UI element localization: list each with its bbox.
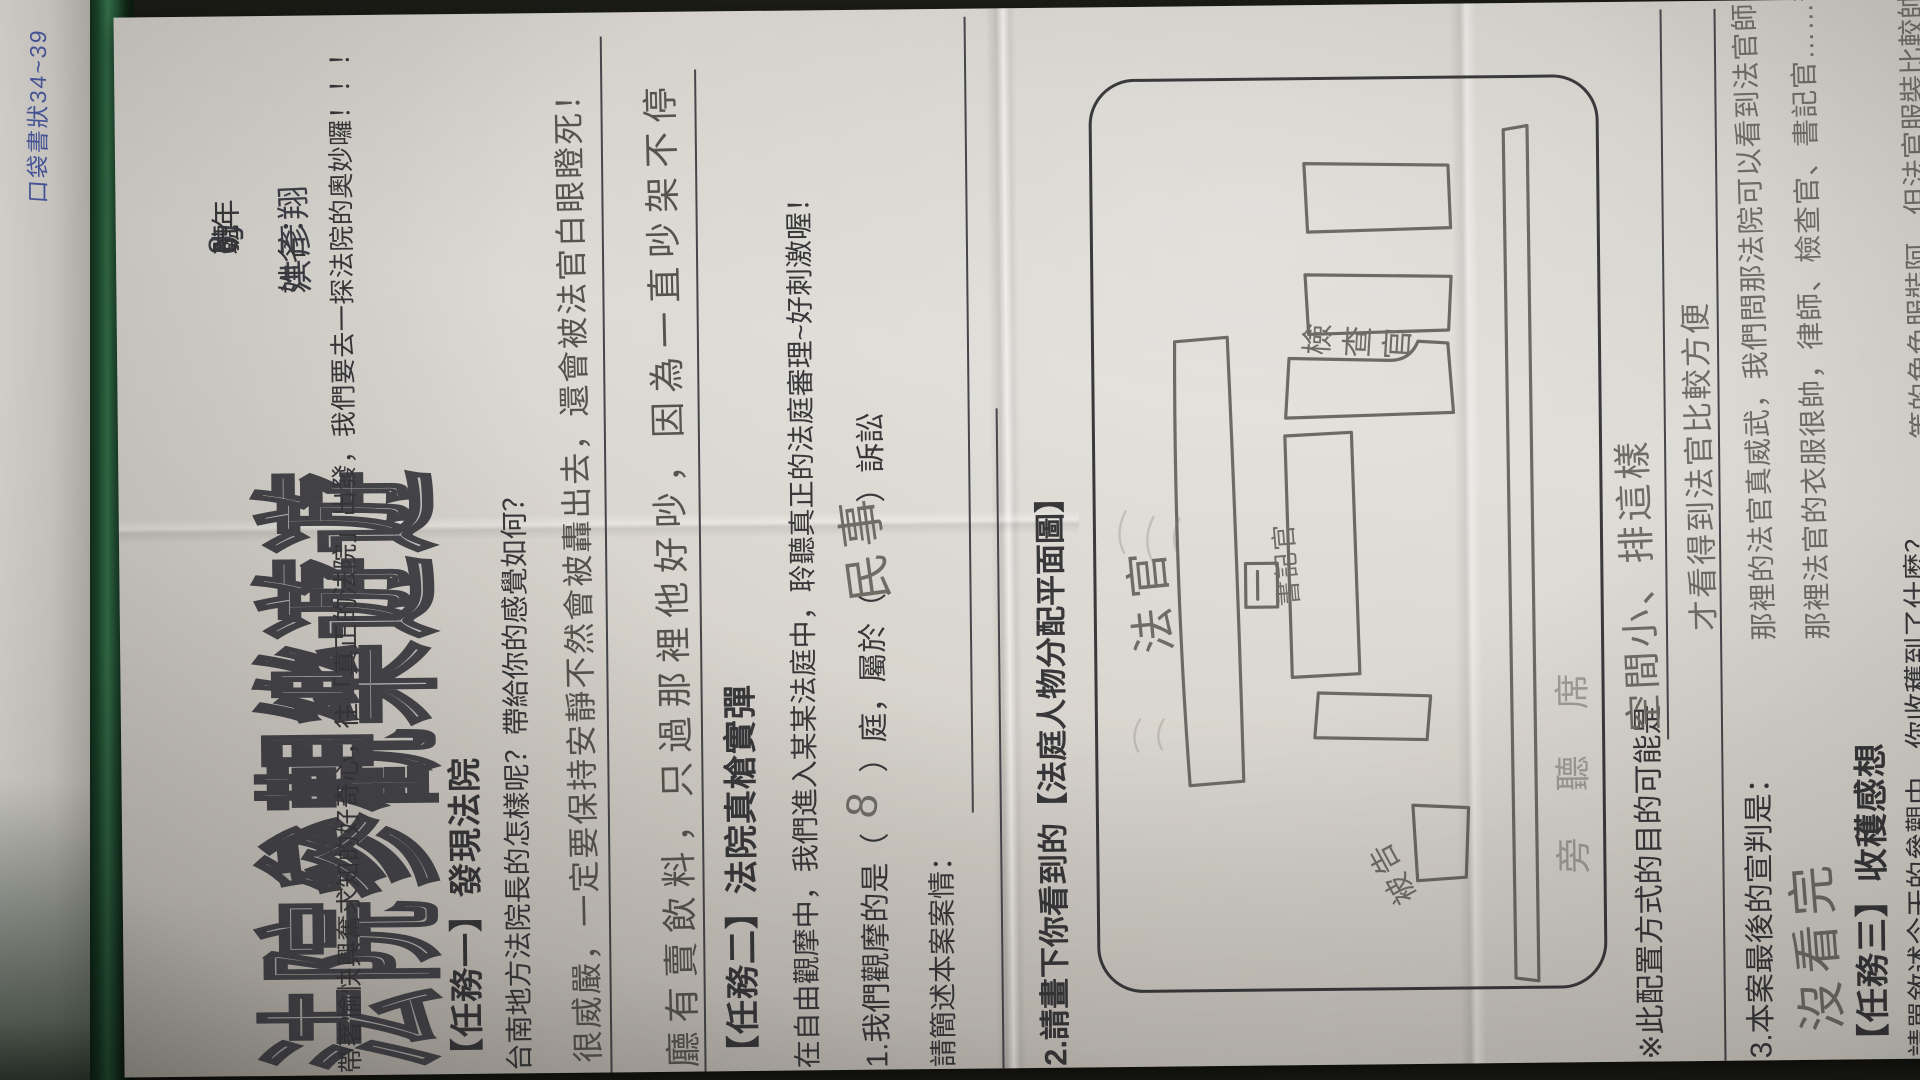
layout-purpose-printed: ※此配置方式的目的可能是	[1623, 704, 1671, 1060]
verdict-printed: 3.本案最後的宣判是：	[1733, 763, 1780, 1058]
label-clerk: 書記官	[1263, 521, 1307, 608]
photo-stage: 口袋書狀34~39 法院參觀樂遊遊 6 年 ㄅ 班 8 號 姓名： 洪彥翔 帶著…	[0, 0, 1920, 1080]
blue-note-wrap: 口袋書狀34~39	[16, 16, 56, 216]
layout-purpose-handwritten: 空間小、排這樣	[1601, 437, 1669, 733]
witness-stand-sketch	[1314, 692, 1431, 741]
verdict-answer-handwritten: 沒看完	[1770, 855, 1856, 1034]
courtroom-floorplan: 法官 書記官 檢查官 被告 旁聽席	[1088, 74, 1608, 993]
task2-description: 在自由觀摩中，我們進入某某法庭中，聆聽真正的法庭審理~好刺激喔！	[777, 184, 826, 1069]
task3-question: 請單敘述今天的參觀中，你收穫到了什麼？	[1895, 525, 1920, 1057]
underlying-sheet-edge: 口袋書狀34~39	[0, 0, 96, 1080]
label-audience: 旁聽席	[1543, 627, 1598, 874]
judge-bench-sketch	[1174, 337, 1244, 786]
student-name-handwritten: 洪彥翔	[265, 182, 319, 295]
seat-label: 號	[202, 224, 246, 254]
essay-line1: 那裡的法官真威武，我們問那法院可以看到法官師	[1723, 2, 1783, 641]
label-prosecutor: 檢查官	[1297, 314, 1419, 361]
task1-heading: 【任務一】發現法院	[437, 757, 489, 1072]
essay-line2: 那裡法官的衣服很帥，律師、檢查官、書記官……等	[1780, 0, 1836, 640]
task1-answer-line1: 很威嚴，一定要保持安靜不然會被轟出去，還會被法官白眼瞪死！	[543, 76, 610, 1063]
layout-purpose-handwritten-line2: 才看得到法官比較方便	[1670, 300, 1724, 631]
label-judge: 法官	[1109, 539, 1186, 657]
task3-heading: 【任務三】收穫感想	[1843, 742, 1895, 1057]
defendant-desk-sketch	[1413, 805, 1469, 881]
floorplan-sketch-lines	[1091, 77, 1604, 990]
essay-line3: 等的角色服裝阿，但法官服裝比較帥	[1889, 0, 1920, 439]
paper-crease	[985, 8, 1026, 1068]
audience-bench-sketch	[1503, 125, 1539, 981]
right-desk-sketch	[1304, 162, 1451, 232]
ruled-line	[964, 17, 974, 813]
case-type-handwritten: 民事	[818, 490, 902, 606]
court-number-handwritten: 8	[836, 790, 889, 821]
task2-heading: 【任務二】法院真槍實彈	[713, 684, 766, 1069]
blue-margin-note: 口袋書狀34~39	[19, 28, 53, 205]
task1-question: 台南地方法院長的怎樣呢？帶給你的感覺如何？	[492, 483, 538, 1071]
worksheet-paper: 法院參觀樂遊遊 6 年 ㄅ 班 8 號 姓名： 洪彥翔 帶著愉快興奮求知的好奇心…	[114, 0, 1920, 1078]
task2-q2-heading: 2.請畫下你看到的【法庭人物分配平面圖】	[1024, 482, 1075, 1066]
erased-scribble	[1134, 719, 1164, 751]
case-summary-label: 請簡述本案案情：	[920, 843, 962, 1067]
